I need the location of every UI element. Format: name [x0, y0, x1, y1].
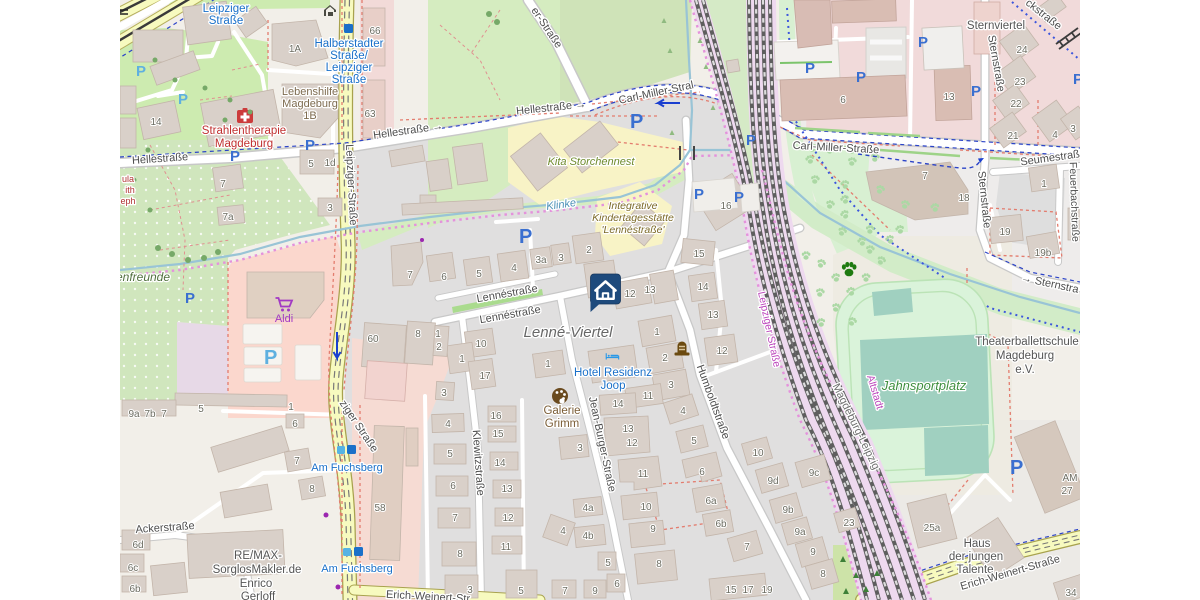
svg-text:3: 3: [1070, 124, 1076, 135]
svg-text:3a: 3a: [535, 255, 547, 266]
svg-text:12: 12: [624, 289, 636, 300]
svg-text:AM: AM: [1063, 473, 1078, 484]
svg-text:15: 15: [492, 429, 504, 440]
svg-text:11: 11: [501, 542, 512, 553]
svg-text:P: P: [734, 189, 744, 206]
svg-text:4b: 4b: [582, 531, 594, 542]
svg-text:22: 22: [1010, 99, 1022, 110]
svg-text:Galerie: Galerie: [543, 405, 580, 417]
svg-text:9: 9: [592, 586, 598, 597]
svg-text:4: 4: [680, 406, 686, 417]
svg-text:Theaterballettschule: Theaterballettschule: [975, 336, 1079, 348]
svg-text:13: 13: [707, 310, 719, 321]
svg-text:Straße/: Straße/: [330, 50, 369, 62]
svg-text:9: 9: [810, 547, 816, 558]
svg-text:Magdeburg: Magdeburg: [996, 350, 1054, 362]
svg-text:P: P: [230, 148, 240, 165]
svg-text:Leipziger: Leipziger: [326, 62, 373, 74]
svg-text:14: 14: [494, 458, 506, 469]
svg-text:5: 5: [605, 558, 611, 569]
svg-text:60: 60: [367, 334, 379, 345]
svg-text:P: P: [178, 91, 188, 108]
svg-text:1: 1: [545, 359, 551, 370]
svg-text:19: 19: [761, 585, 773, 596]
svg-text:16: 16: [490, 411, 502, 422]
svg-text:25a: 25a: [924, 523, 941, 534]
svg-text:P: P: [630, 111, 643, 133]
svg-text:1: 1: [654, 327, 660, 338]
svg-text:15: 15: [725, 585, 737, 596]
svg-text:14: 14: [612, 399, 624, 410]
svg-text:P: P: [805, 60, 815, 77]
svg-text:Magdeburg: Magdeburg: [215, 138, 273, 150]
svg-text:8: 8: [457, 549, 463, 560]
svg-text:P: P: [971, 83, 981, 100]
svg-text:Sternviertel: Sternviertel: [967, 20, 1025, 32]
svg-text:P: P: [264, 347, 277, 369]
svg-text:4a: 4a: [582, 503, 594, 514]
svg-text:1B: 1B: [303, 110, 316, 122]
svg-text:24: 24: [1016, 45, 1028, 56]
svg-text:P: P: [694, 186, 704, 203]
svg-text:RE/MAX-: RE/MAX-: [234, 550, 282, 562]
svg-text:1: 1: [435, 329, 441, 340]
svg-text:3: 3: [327, 203, 333, 214]
svg-text:1d: 1d: [324, 158, 335, 169]
svg-text:Grimm: Grimm: [545, 418, 580, 430]
svg-text:9b: 9b: [782, 505, 794, 516]
svg-text:4: 4: [1052, 130, 1058, 141]
svg-text:4: 4: [511, 263, 517, 274]
svg-text:12: 12: [716, 346, 728, 357]
svg-text:7b: 7b: [144, 409, 156, 420]
svg-text:Straße: Straße: [209, 15, 244, 27]
svg-text:63: 63: [364, 109, 376, 120]
svg-text:6b: 6b: [129, 584, 141, 595]
svg-text:3: 3: [577, 443, 583, 454]
svg-text:6: 6: [441, 272, 447, 283]
svg-text:13: 13: [622, 424, 634, 435]
svg-text:Lenné-Viertel: Lenné-Viertel: [524, 324, 614, 341]
svg-text:9c: 9c: [809, 468, 820, 479]
svg-text:7: 7: [562, 586, 568, 597]
svg-text:6c: 6c: [128, 563, 139, 574]
svg-text:5: 5: [198, 404, 204, 415]
svg-text:66: 66: [369, 26, 381, 37]
svg-text:58: 58: [374, 503, 386, 514]
svg-text:Am Fuchsberg: Am Fuchsberg: [311, 462, 383, 474]
svg-text:7a: 7a: [222, 212, 234, 223]
svg-text:19: 19: [999, 227, 1011, 238]
svg-text:12: 12: [502, 513, 514, 524]
svg-text:Integrative: Integrative: [608, 200, 657, 212]
svg-text:2: 2: [436, 342, 442, 353]
svg-text:Haus: Haus: [964, 538, 991, 550]
svg-text:7: 7: [407, 270, 413, 281]
svg-text:9d: 9d: [767, 476, 778, 487]
svg-text:Lebenshilfe: Lebenshilfe: [282, 86, 338, 98]
svg-text:7: 7: [294, 456, 300, 467]
svg-text:Aldi: Aldi: [275, 313, 293, 325]
svg-text:5: 5: [476, 269, 482, 280]
svg-text:9: 9: [650, 524, 656, 535]
svg-text:8: 8: [656, 559, 662, 570]
svg-text:P: P: [136, 63, 146, 80]
svg-text:5: 5: [308, 159, 314, 170]
svg-text:7: 7: [220, 179, 226, 190]
svg-text:Straße: Straße: [332, 74, 367, 86]
svg-text:21: 21: [1007, 131, 1019, 142]
svg-text:eph: eph: [120, 196, 135, 206]
svg-text:1: 1: [459, 354, 465, 365]
svg-text:P: P: [746, 132, 756, 149]
svg-text:8: 8: [415, 329, 421, 340]
svg-text:11: 11: [638, 469, 649, 480]
svg-text:2: 2: [586, 245, 592, 256]
svg-text:23: 23: [843, 518, 855, 529]
svg-text:16: 16: [720, 201, 732, 212]
svg-text:5: 5: [447, 449, 453, 460]
svg-text:ula: ula: [122, 174, 134, 184]
svg-text:6: 6: [292, 419, 298, 430]
svg-text:13: 13: [501, 484, 513, 495]
svg-text:Hotel Residenz: Hotel Residenz: [574, 367, 652, 379]
svg-text:Leipziger: Leipziger: [203, 3, 250, 15]
svg-text:13: 13: [943, 92, 955, 103]
svg-text:ith: ith: [125, 185, 135, 195]
svg-text:6d: 6d: [132, 540, 143, 551]
svg-text:15: 15: [693, 249, 705, 260]
svg-text:7: 7: [744, 542, 750, 553]
svg-text:18: 18: [958, 193, 970, 204]
svg-text:34: 34: [1065, 588, 1077, 599]
svg-text:P: P: [305, 137, 315, 154]
svg-text:23: 23: [1014, 77, 1026, 88]
svg-text:13: 13: [644, 285, 656, 296]
svg-text:6: 6: [614, 579, 620, 590]
svg-text:Enrico: Enrico: [240, 578, 273, 590]
svg-text:P: P: [1010, 457, 1023, 479]
svg-text:P: P: [918, 34, 928, 51]
svg-text:1: 1: [288, 402, 294, 413]
svg-text:Gerloff: Gerloff: [241, 591, 276, 600]
svg-text:Strahlentherapie: Strahlentherapie: [202, 125, 286, 137]
svg-text:10: 10: [752, 448, 764, 459]
svg-text:der jungen: der jungen: [949, 551, 1003, 563]
svg-text:6: 6: [450, 481, 456, 492]
svg-text:10: 10: [475, 339, 487, 350]
svg-text:10: 10: [640, 502, 652, 513]
svg-text:Magdeburg: Magdeburg: [282, 98, 338, 110]
svg-text:7: 7: [161, 409, 167, 420]
svg-text:4: 4: [445, 419, 451, 430]
svg-text:P: P: [856, 69, 866, 86]
svg-text:3: 3: [467, 585, 473, 596]
svg-text:8: 8: [309, 484, 315, 495]
svg-text:6: 6: [699, 467, 705, 478]
svg-text:5: 5: [518, 586, 524, 597]
svg-text:P: P: [519, 226, 532, 248]
svg-text:3: 3: [668, 380, 674, 391]
svg-text:6: 6: [840, 95, 846, 106]
svg-text:3: 3: [441, 388, 447, 399]
svg-text:Am Fuchsberg: Am Fuchsberg: [321, 563, 393, 575]
svg-text:1: 1: [1041, 179, 1047, 190]
svg-text:9a: 9a: [128, 409, 140, 420]
svg-text:5: 5: [691, 436, 697, 447]
svg-text:11: 11: [643, 391, 654, 402]
svg-text:17: 17: [742, 585, 754, 596]
svg-text:3: 3: [558, 253, 564, 264]
svg-text:Kita Storchennest: Kita Storchennest: [548, 156, 636, 168]
svg-text:P: P: [185, 290, 195, 307]
svg-text:7: 7: [452, 513, 458, 524]
svg-text:14: 14: [697, 282, 709, 293]
svg-text:4: 4: [560, 526, 566, 537]
svg-text:9a: 9a: [794, 527, 806, 538]
svg-text:17: 17: [479, 371, 491, 382]
svg-text:1A: 1A: [289, 44, 302, 55]
svg-text:e.V.: e.V.: [1015, 364, 1034, 376]
svg-text:12: 12: [626, 438, 638, 449]
svg-text:6a: 6a: [705, 496, 717, 507]
svg-text:Jahnsportplatz: Jahnsportplatz: [881, 378, 967, 393]
svg-text:19b: 19b: [1035, 248, 1052, 259]
svg-text:SorglosMakler.de: SorglosMakler.de: [213, 564, 302, 576]
svg-text:8: 8: [820, 569, 826, 580]
svg-text:enfreunde: enfreunde: [116, 270, 170, 284]
svg-text:27: 27: [1061, 486, 1073, 497]
svg-text:Joop: Joop: [601, 380, 626, 392]
svg-text:7: 7: [922, 171, 928, 182]
svg-text:14: 14: [150, 117, 162, 128]
svg-text:Halberstadter: Halberstadter: [314, 38, 383, 50]
svg-text:Kindertagesstätte: Kindertagesstätte: [592, 212, 674, 224]
svg-text:6b: 6b: [715, 519, 727, 530]
svg-text:2: 2: [662, 353, 668, 364]
svg-text:'Lennéstraße': 'Lennéstraße': [602, 224, 666, 236]
